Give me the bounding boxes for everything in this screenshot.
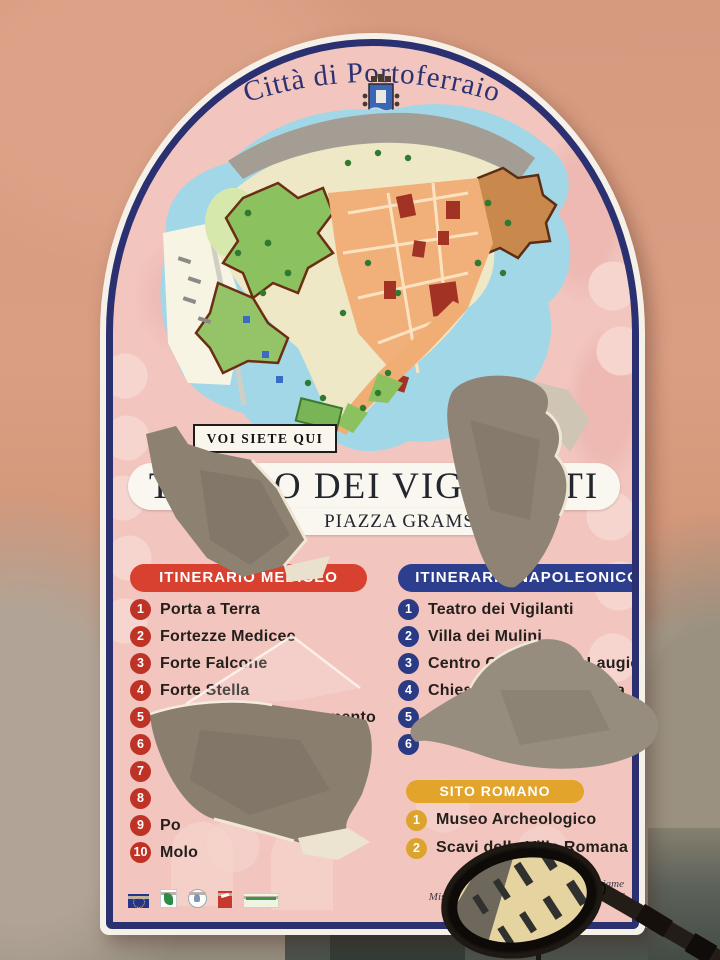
item-number-badge: 5: [398, 707, 419, 728]
city-map: [148, 83, 576, 457]
provincia-logo: [218, 891, 232, 908]
item-number-badge: 4: [130, 680, 151, 701]
roman-header: SITO ROMANO: [406, 780, 584, 803]
item-number-badge: 2: [130, 626, 151, 647]
list-item: 5Chiesa del S.S. Sacramento: [130, 704, 380, 731]
list-item: 5: [398, 704, 639, 731]
credit-text: Opera realizzata con il cofinanziame Mis…: [429, 878, 624, 904]
eu-flag-logo: [128, 894, 149, 908]
medici-header: ITINERARIO MEDICEO: [130, 564, 367, 592]
sign-panel: Città di Portoferraio: [106, 39, 639, 929]
item-number-badge: 1: [406, 810, 427, 831]
napoleonic-header: ITINERARIO NAPOLEONICO: [398, 564, 639, 592]
roman-site-list: 1Museo Archeologico 2Scavi della Villa R…: [406, 806, 639, 862]
list-item: 1Porta a Terra: [130, 596, 380, 623]
list-item: 9Po: [130, 812, 380, 839]
item-number-badge: 2: [398, 626, 419, 647]
list-item: 6: [130, 731, 380, 758]
item-number-badge: 6: [130, 734, 151, 755]
venue-banner: TEATRO DEI VIGILANTI: [128, 463, 620, 510]
list-item: 7: [130, 758, 380, 785]
list-item: 4Chiesa della Misericordia: [398, 677, 639, 704]
sponsor-logos: [128, 889, 279, 908]
item-number-badge: 6: [398, 734, 419, 755]
item-number-badge: 1: [130, 599, 151, 620]
leader-plus-logo: [243, 893, 279, 908]
list-item: 1Teatro dei Vigilanti: [398, 596, 639, 623]
napoleonic-itinerary-list: 1Teatro dei Vigilanti 2Villa dei Mulini …: [398, 596, 639, 758]
wall-dark-band: [330, 932, 465, 960]
list-item: 10Molo: [130, 839, 380, 866]
item-number-badge: 4: [398, 680, 419, 701]
medici-itinerary-list: 1Porta a Terra 2Fortezze Medicee 3Forte …: [130, 596, 380, 866]
item-number-badge: 10: [130, 842, 151, 863]
list-item: 2Fortezze Medicee: [130, 623, 380, 650]
list-item: 4Forte Stella: [130, 677, 380, 704]
wall-corner-dark: [648, 828, 720, 960]
repubblica-italiana-logo: [188, 889, 207, 908]
piazza-banner: PIAZZA GRAMSCI: [278, 508, 542, 535]
list-item: 8: [130, 785, 380, 812]
item-number-badge: 3: [398, 653, 419, 674]
list-item: 3Forte Falcone: [130, 650, 380, 677]
list-item: 6: [398, 731, 639, 758]
list-item: 3Centro Culturale De Laugier: [398, 650, 639, 677]
photo-of-tourist-sign: Città di Portoferraio: [0, 0, 720, 960]
list-item: 2Villa dei Mulini: [398, 623, 639, 650]
item-number-badge: 9: [130, 815, 151, 836]
list-item: 2Scavi della Villa Romana: [406, 834, 639, 862]
you-are-here-box: VOI SIETE QUI: [193, 424, 337, 453]
item-number-badge: 8: [130, 788, 151, 809]
sign-footer: Opera realizzata con il cofinanziame Mis…: [128, 878, 624, 912]
item-number-badge: 2: [406, 838, 427, 859]
list-item: 1Museo Archeologico: [406, 806, 639, 834]
item-number-badge: 7: [130, 761, 151, 782]
item-number-badge: 5: [130, 707, 151, 728]
item-number-badge: 1: [398, 599, 419, 620]
tourist-sign-board: Città di Portoferraio: [100, 33, 645, 935]
regione-logo: [160, 889, 177, 908]
item-number-badge: 3: [130, 653, 151, 674]
